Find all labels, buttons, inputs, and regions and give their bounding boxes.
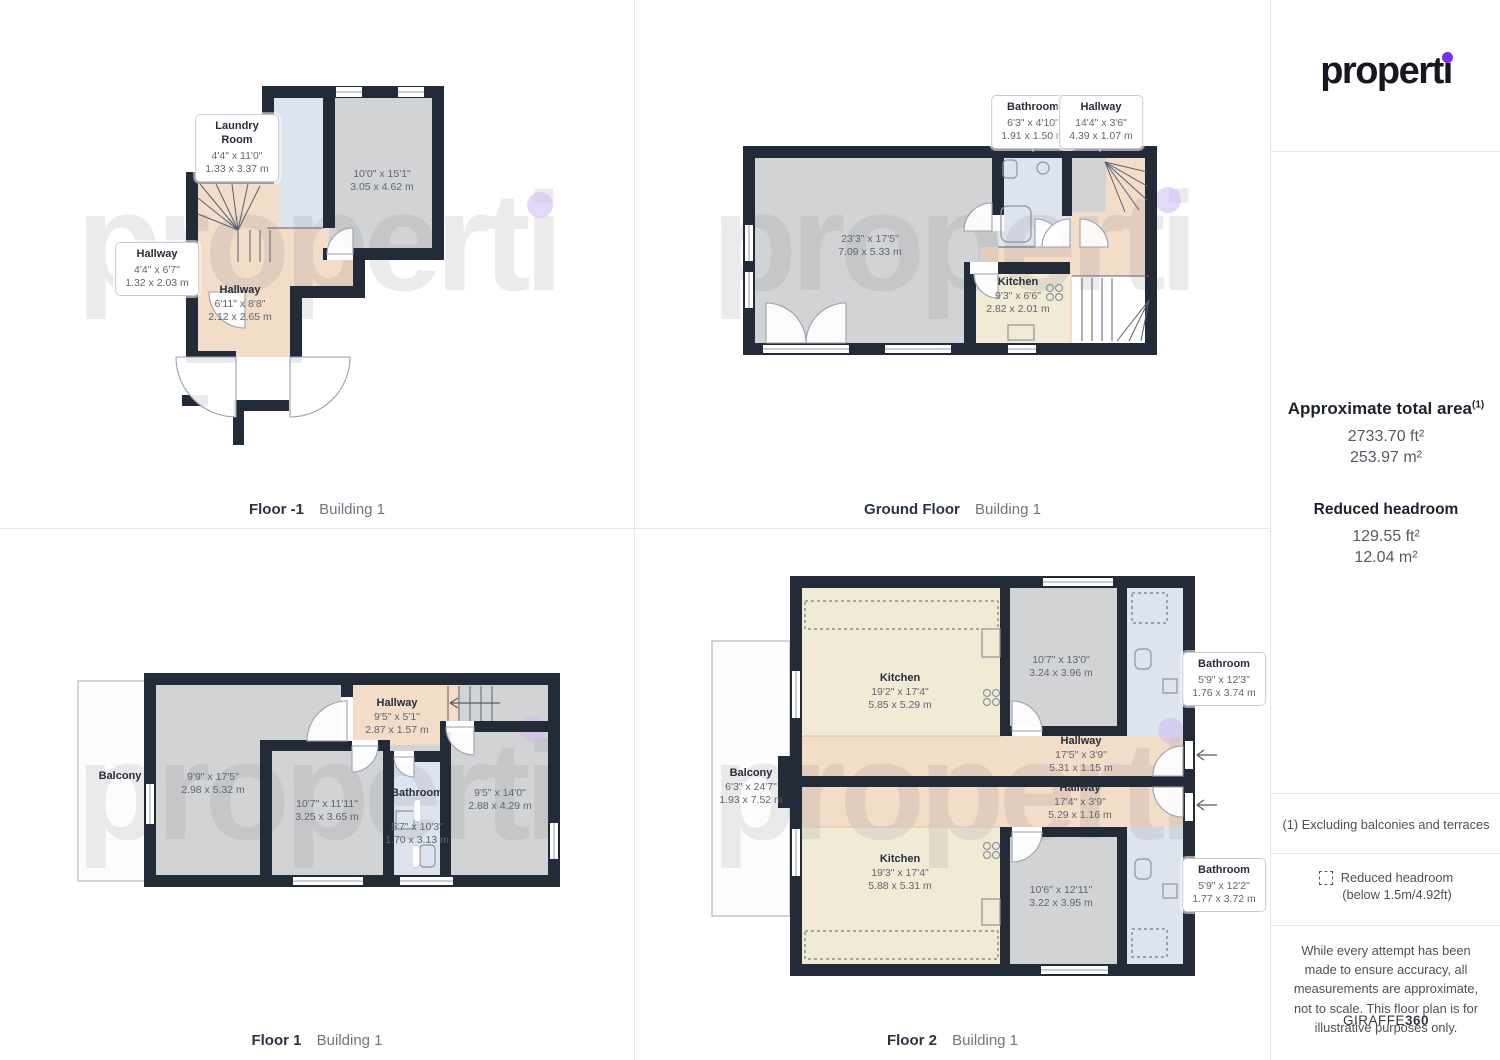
quadrant-divider-horizontal: [0, 528, 1270, 529]
dashed-square-icon: [1319, 871, 1333, 885]
room-dims-ft: 9'9" x 17'5": [181, 771, 245, 784]
giraffe-360-text: 360: [1405, 1013, 1429, 1028]
logo-dot-icon: [1442, 52, 1453, 63]
room-name: Hallway: [125, 248, 189, 262]
hallway-label: Hallway 9'5" x 5'1" 2.87 x 1.57 m: [365, 697, 429, 737]
room-name: Laundry Room: [205, 120, 269, 148]
room-dims-m: 2.82 x 2.01 m: [986, 303, 1050, 316]
building-name: Building 1: [319, 501, 385, 518]
reduced-headroom-title: Reduced headroom: [1271, 501, 1500, 519]
kitchen-bottom-label: Kitchen 19'3" x 17'4" 5.88 x 5.31 m: [868, 853, 932, 893]
bathroom-bottom-label: Bathroom 5'9" x 12'2" 1.77 x 3.72 m: [1182, 858, 1266, 912]
room-dims-m: 3.22 x 3.95 m: [1029, 897, 1093, 910]
sidebar-divider: [1271, 925, 1500, 926]
sidebar: properti Approximate total area(1) 2733.…: [1270, 0, 1500, 1060]
room-dims-m: 2.98 x 5.32 m: [181, 784, 245, 797]
headroom-legend-section: Reduced headroom (below 1.5m/4.92ft): [1271, 869, 1500, 903]
room-dims-ft: 10'0" x 15'1": [350, 168, 414, 181]
balcony-label: Balcony: [99, 770, 142, 784]
room-dims-m: 2.12 x 2.65 m: [208, 311, 272, 324]
room-left-label: 9'9" x 17'5" 2.98 x 5.32 m: [181, 771, 245, 797]
floor-minus-1-drawing: properti: [0, 0, 634, 528]
building-name: Building 1: [952, 1032, 1018, 1049]
room-name: Balcony: [99, 770, 142, 784]
room-dims-m: 1.70 x 3.13 m: [385, 834, 449, 847]
floor-1-drawing: properti: [0, 529, 634, 1060]
total-area-m: 253.97 m²: [1271, 447, 1500, 468]
room-dims-m: 2.88 x 4.29 m: [468, 800, 532, 813]
room-dims-m: 1.77 x 3.72 m: [1192, 893, 1256, 906]
plan-floor-minus-1: properti: [0, 0, 634, 528]
total-area-section: Approximate total area(1) 2733.70 ft² 25…: [1271, 399, 1500, 468]
room-dims-m: 5.31 x 1.15 m: [1049, 762, 1113, 775]
bathroom-label: Bathroom 5'7" x 10'3" 1.70 x 3.13 m: [385, 787, 449, 867]
room-dims-m: 3.05 x 4.62 m: [350, 181, 414, 194]
room-name: Balcony: [719, 767, 783, 781]
floorplan-export-page: properti: [0, 0, 1500, 1060]
room-dims-ft: 5'7" x 10'3": [385, 821, 449, 834]
room-dims-ft: 10'7" x 11'11": [295, 798, 359, 811]
building-name: Building 1: [975, 501, 1041, 518]
room-dims-m: 1.93 x 7.52 m: [719, 794, 783, 807]
room-name: Kitchen: [868, 853, 932, 867]
room-bottom-label: 10'6" x 12'11" 3.22 x 3.95 m: [1029, 884, 1093, 910]
watermark-dot-icon: [1155, 187, 1181, 213]
room-dims-ft: 19'3" x 17'4": [868, 867, 932, 880]
balcony-label: Balcony 6'3" x 24'7" 1.93 x 7.52 m: [719, 767, 783, 807]
footnote-text: (1) Excluding balconies and terraces: [1271, 817, 1500, 832]
room-dims-m: 1.33 x 3.37 m: [205, 163, 269, 176]
ground-floor-drawing: properti: [635, 0, 1270, 528]
room-dims-ft: 6'11" x 8'8": [208, 298, 272, 311]
room-name: Kitchen: [868, 672, 932, 686]
entry-arrow-icon: [1197, 750, 1217, 760]
floor-name: Floor 1: [251, 1032, 301, 1049]
room-dims-ft: 19'2" x 17'4": [868, 686, 932, 699]
legend-line2: (below 1.5m/4.92ft): [1342, 887, 1452, 902]
room-dims-ft: 17'5" x 3'9": [1049, 749, 1113, 762]
room-dims-ft: 4'4" x 6'7": [125, 264, 189, 277]
total-area-title: Approximate total area(1): [1271, 399, 1500, 419]
legend-line1: Reduced headroom: [1341, 870, 1453, 885]
kitchen-label: Kitchen 9'3" x 6'6" 2.82 x 2.01 m: [986, 276, 1050, 316]
room-dims-ft: 10'7" x 13'0": [1029, 654, 1093, 667]
room-dims-ft: 10'6" x 12'11": [1029, 884, 1093, 897]
plan-floor-2: properti: [635, 529, 1270, 1060]
storage-room-label: 10'0" x 15'1" 3.05 x 4.62 m: [350, 168, 414, 194]
room-name: Hallway: [365, 697, 429, 711]
room-dims-ft: 6'3" x 24'7": [719, 781, 783, 794]
room-dims-m: 2.87 x 1.57 m: [365, 724, 429, 737]
giraffe-text: GIRAFFE: [1343, 1013, 1405, 1028]
room-dims-ft: 14'4" x 3'6": [1069, 117, 1133, 130]
caption-floor-2: Floor 2 Building 1: [635, 1032, 1270, 1049]
building-name: Building 1: [317, 1032, 383, 1049]
laundry-room-label: Laundry Room 4'4" x 11'0" 1.33 x 3.37 m: [195, 114, 279, 182]
hallway-small-label: Hallway 4'4" x 6'7" 1.32 x 2.03 m: [115, 242, 199, 296]
room-name: Bathroom: [1001, 101, 1065, 115]
room-right-label: 9'5" x 14'0" 2.88 x 4.29 m: [468, 787, 532, 813]
quadrant-divider-vertical: [634, 0, 635, 1060]
room-dims-m: 5.88 x 5.31 m: [868, 880, 932, 893]
room-name: Hallway: [1049, 735, 1113, 749]
room-dims-m: 1.91 x 1.50 m: [1001, 130, 1065, 143]
watermark-text: properti: [712, 163, 1193, 320]
room-top-label: 10'7" x 13'0" 3.24 x 3.96 m: [1029, 654, 1093, 680]
room-dims-m: 7.09 x 5.33 m: [838, 246, 902, 259]
sidebar-divider: [1271, 151, 1500, 152]
footnote-marker: (1): [1472, 399, 1484, 410]
room-name: Hallway: [208, 284, 272, 298]
hallway-bottom-label: Hallway 17'4" x 3'9" 5.29 x 1.16 m: [1048, 782, 1112, 822]
room-name: Bathroom: [1192, 864, 1256, 878]
room-dims-ft: 6'3" x 4'10": [1001, 117, 1065, 130]
properti-logo: properti: [1271, 50, 1500, 93]
total-area-title-text: Approximate total area: [1288, 399, 1472, 418]
room-dims-m: 1.32 x 2.03 m: [125, 277, 189, 290]
room-name: Bathroom: [1192, 658, 1256, 672]
reduced-headroom-ft: 129.55 ft²: [1271, 526, 1500, 547]
entry-arrow-icon: [1197, 800, 1217, 810]
room-name: Hallway: [1048, 782, 1112, 796]
hallway-top-label: Hallway 17'5" x 3'9" 5.31 x 1.15 m: [1049, 735, 1113, 775]
total-area-ft: 2733.70 ft²: [1271, 426, 1500, 447]
room-name: Hallway: [1069, 101, 1133, 115]
room-dims-m: 5.29 x 1.16 m: [1048, 809, 1112, 822]
room-dims-ft: 4'4" x 11'0": [205, 150, 269, 163]
footnote-section: (1) Excluding balconies and terraces: [1271, 817, 1500, 832]
sidebar-divider: [1271, 793, 1500, 794]
room-dims-m: 4.39 x 1.07 m: [1069, 130, 1133, 143]
caption-floor-minus-1: Floor -1 Building 1: [0, 501, 634, 518]
caption-ground-floor: Ground Floor Building 1: [635, 501, 1270, 518]
hallway-label: Hallway 6'11" x 8'8" 2.12 x 2.65 m: [208, 284, 272, 324]
living-room-label: 23'3" x 17'5" 7.09 x 5.33 m: [838, 233, 902, 259]
watermark-dot-icon: [1158, 718, 1184, 744]
room-dims-ft: 9'5" x 5'1": [365, 711, 429, 724]
reduced-headroom-m: 12.04 m²: [1271, 547, 1500, 568]
room-dims-m: 3.24 x 3.96 m: [1029, 667, 1093, 680]
plan-ground-floor: properti: [635, 0, 1270, 528]
room-dims-ft: 5'9" x 12'3": [1192, 674, 1256, 687]
reduced-headroom-section: Reduced headroom 129.55 ft² 12.04 m²: [1271, 501, 1500, 568]
bathroom-top-label: Bathroom 5'9" x 12'3" 1.76 x 3.74 m: [1182, 652, 1266, 706]
kitchen-top-label: Kitchen 19'2" x 17'4" 5.85 x 5.29 m: [868, 672, 932, 712]
room-dims-m: 1.76 x 3.74 m: [1192, 687, 1256, 700]
room-dims-ft: 23'3" x 17'5": [838, 233, 902, 246]
caption-floor-1: Floor 1 Building 1: [0, 1032, 634, 1049]
room-dims-ft: 17'4" x 3'9": [1048, 796, 1112, 809]
watermark-dot-icon: [527, 192, 553, 218]
floor-name: Floor 2: [887, 1032, 937, 1049]
room-dims-ft: 9'3" x 6'6": [986, 290, 1050, 303]
room-dims-m: 3.25 x 3.65 m: [295, 811, 359, 824]
sidebar-divider: [1271, 853, 1500, 854]
room-dims-ft: 9'5" x 14'0": [468, 787, 532, 800]
room-middle-label: 10'7" x 11'11" 3.25 x 3.65 m: [295, 798, 359, 824]
floor-name: Ground Floor: [864, 501, 960, 518]
hallway-label: Hallway 14'4" x 3'6" 4.39 x 1.07 m: [1059, 95, 1143, 149]
plan-floor-1: properti: [0, 529, 634, 1060]
logo-text: properti: [1320, 50, 1452, 92]
room-name: Kitchen: [986, 276, 1050, 290]
room-dims-ft: 5'9" x 12'2": [1192, 880, 1256, 893]
room-dims-m: 5.85 x 5.29 m: [868, 699, 932, 712]
floor-name: Floor -1: [249, 501, 304, 518]
giraffe360-brand: GIRAFFE360: [1271, 1012, 1500, 1030]
